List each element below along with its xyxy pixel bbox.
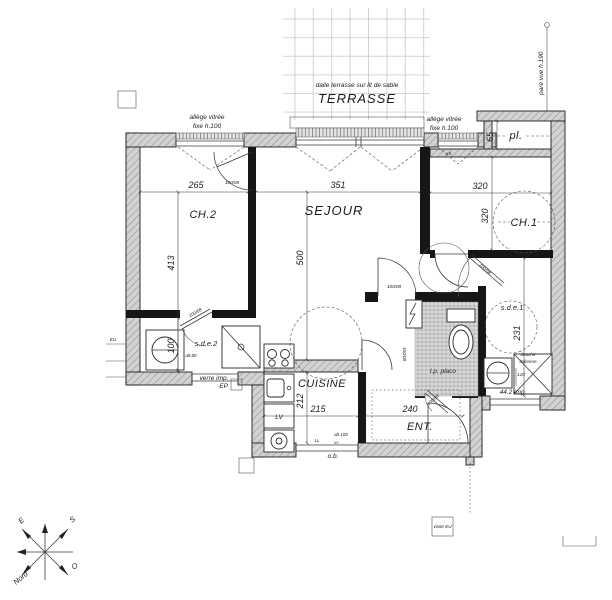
dim-231: 231 xyxy=(512,325,522,341)
dim-351: 351 xyxy=(330,180,345,190)
compass-e: E xyxy=(17,515,27,526)
note-douche-1: douche xyxy=(520,352,536,357)
compass-o: O xyxy=(70,561,80,572)
allege-right-2: fixe h.100 xyxy=(430,125,459,132)
allege-left-2: fixe h.100 xyxy=(193,123,222,130)
visite-eu-label: visite EU xyxy=(433,524,452,529)
room-label-sde1: s.d.e.1 xyxy=(501,303,524,312)
note-alt80: alt.80 xyxy=(185,353,197,358)
note-douche-dim: 120 xyxy=(517,372,525,377)
door-label-cuisine: 100/08 xyxy=(402,347,407,361)
dim-320-v: 320 xyxy=(480,208,490,223)
room-label-pl: pl. xyxy=(508,130,522,142)
bracket-mark xyxy=(563,536,596,546)
note-vr: v.r. xyxy=(334,440,340,445)
toilet-tank xyxy=(447,309,475,322)
pare-vue: pare vue h.190 xyxy=(538,23,549,111)
note-eu: EU xyxy=(110,337,117,342)
room-label-ent: ENT. xyxy=(407,421,433,433)
note-ob: o.b. xyxy=(328,453,339,460)
room-label-terrasse: TERRASSE xyxy=(318,91,396,106)
floor-plan-drawing: dalle terrasse sur lit de sable TERRASSE… xyxy=(0,0,612,600)
inspection-box-bottom xyxy=(239,458,254,473)
door-label-ch2: 100/08 xyxy=(225,180,239,185)
room-label-ch1: CH.1 xyxy=(510,217,537,229)
terrace-note: dalle terrasse sur lit de sable xyxy=(316,82,399,89)
dim-500: 500 xyxy=(295,250,305,265)
note-ll: LL xyxy=(314,438,320,443)
dim-240: 240 xyxy=(401,404,417,414)
floor-plan-page: { "plan": { "rooms": { "terrasse": "TERR… xyxy=(0,0,612,600)
compass-nord: Nord xyxy=(12,569,31,587)
dim-320-h: 320 xyxy=(472,181,487,191)
note-alt100: alt.100 xyxy=(334,432,348,437)
dim-212: 212 xyxy=(295,393,305,409)
door-label-sde2: 100/08 xyxy=(188,307,203,319)
door-label-sde1: 100/08 xyxy=(478,262,492,275)
room-label-cuisine: CUISINE xyxy=(298,378,346,390)
dim-413: 413 xyxy=(166,255,176,270)
note-ep: EP xyxy=(219,383,228,390)
note-verre-imp: verre imp. xyxy=(200,375,229,382)
compass-s: S xyxy=(68,514,78,524)
pare-vue-label: pare vue h.190 xyxy=(538,51,545,96)
outer-walls xyxy=(126,111,565,465)
dim-215: 215 xyxy=(309,404,326,414)
allege-left-1: allège vitrée xyxy=(189,114,224,121)
inspection-box-top-left xyxy=(118,91,136,108)
dim-100: 100 xyxy=(166,338,176,353)
note-lp-placo: l.p. placo xyxy=(430,368,456,375)
dim-65: 65 xyxy=(485,131,495,142)
door-label-sejour: 100/08 xyxy=(387,284,401,289)
note-442-imp: 44.2 imp. xyxy=(500,389,527,396)
room-label-sejour: SEJOUR xyxy=(305,203,364,218)
compass-rose: E S O Nord xyxy=(12,514,80,586)
note-douche-2: italienne xyxy=(519,359,537,364)
dimension-lines: 265 351 320 413 500 320 100 212 215 240 … xyxy=(140,121,551,443)
allege-right-1: allège vitrée xyxy=(426,116,461,123)
terrace-area: dalle terrasse sur lit de sable TERRASSE xyxy=(283,8,430,128)
room-label-ch2: CH.2 xyxy=(189,209,216,221)
room-label-sde2: s.d.e.2 xyxy=(195,339,218,348)
dim-265: 265 xyxy=(187,180,204,190)
note-vh: v.h. xyxy=(445,151,452,156)
note-lv: LV xyxy=(275,414,283,421)
